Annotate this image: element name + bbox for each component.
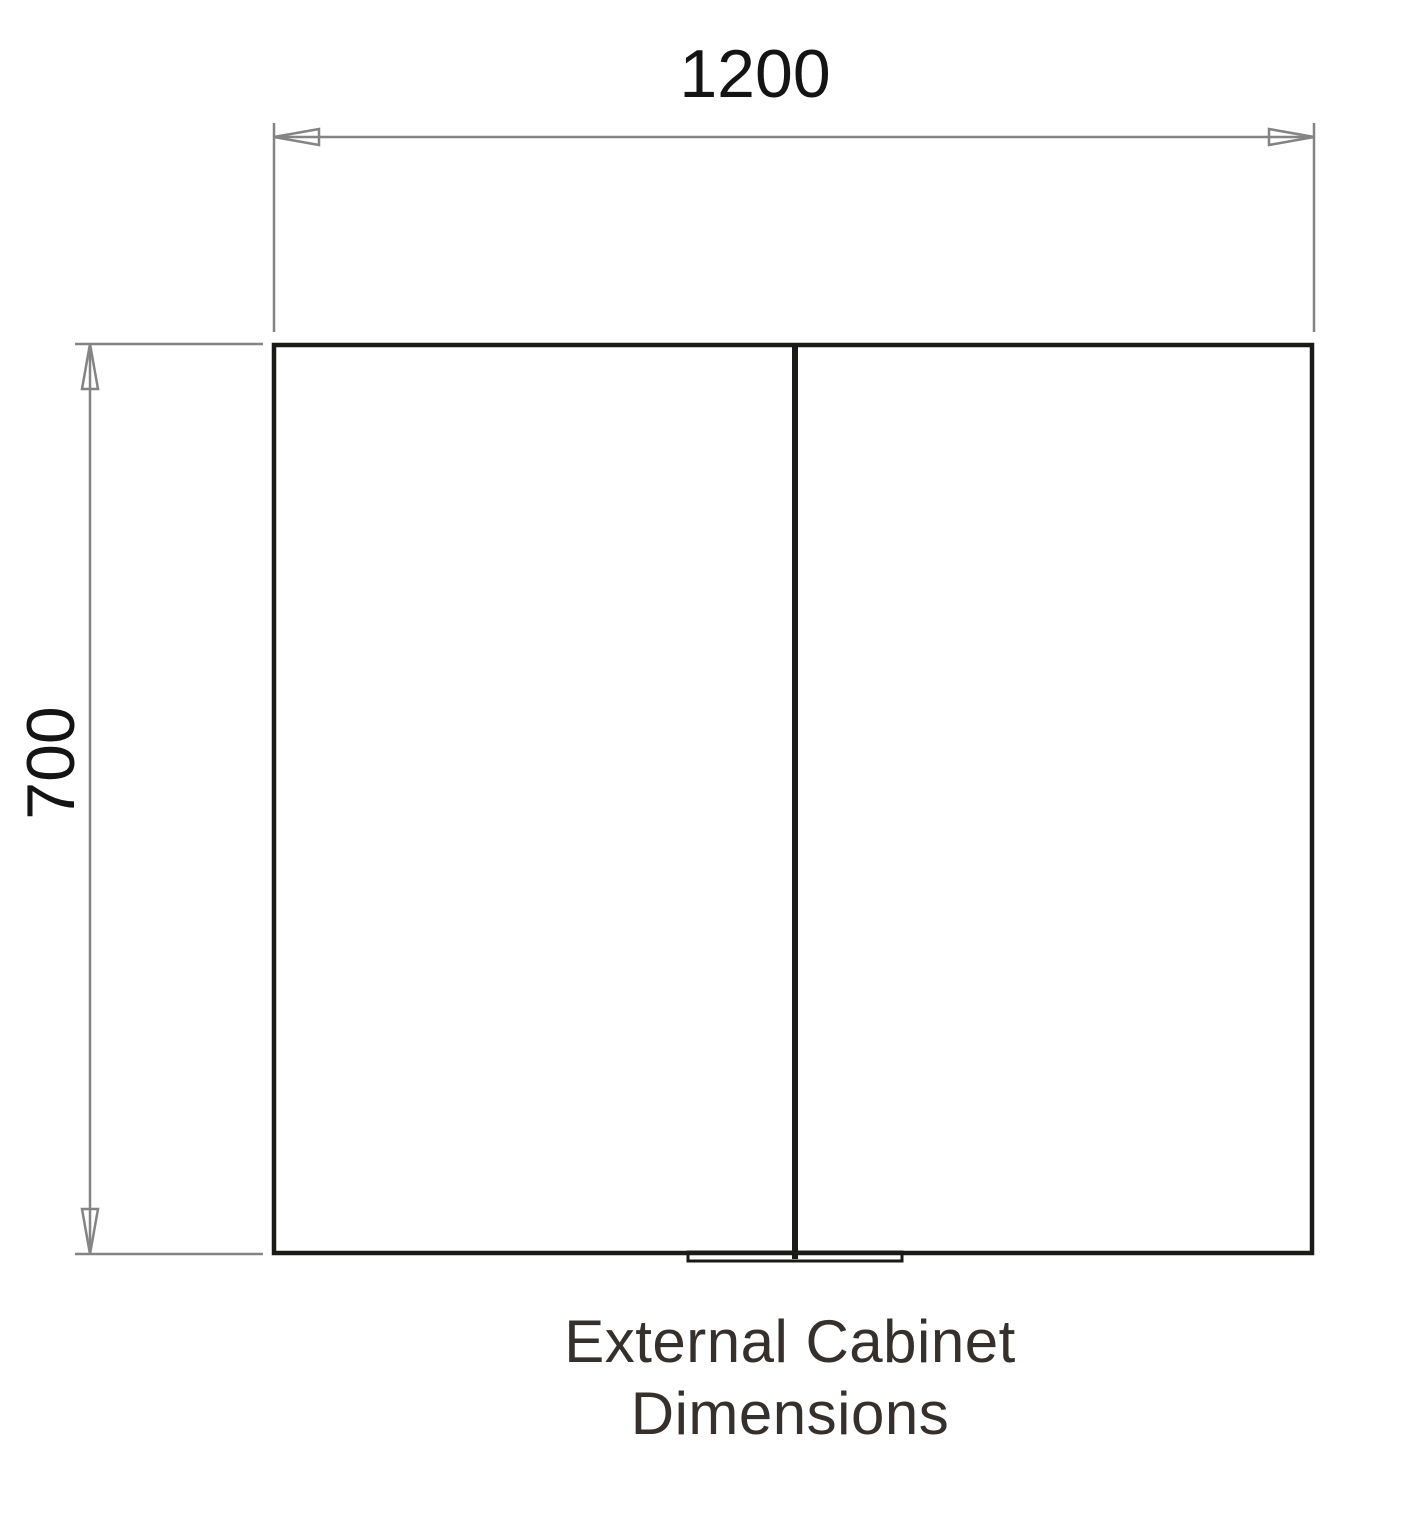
- width-dimension: [274, 123, 1314, 332]
- drawing-canvas: 1200 700 External Cabinet Dimensions: [0, 0, 1410, 1535]
- height-dimension-label: 700: [13, 706, 89, 819]
- width-dimension-label: 1200: [679, 36, 830, 112]
- caption-line-2: Dimensions: [631, 1380, 949, 1447]
- cabinet: [274, 345, 1312, 1261]
- height-dimension: [75, 344, 263, 1254]
- cabinet-dimension-drawing: 1200 700 External Cabinet Dimensions: [0, 0, 1410, 1535]
- caption-line-1: External Cabinet: [564, 1308, 1016, 1375]
